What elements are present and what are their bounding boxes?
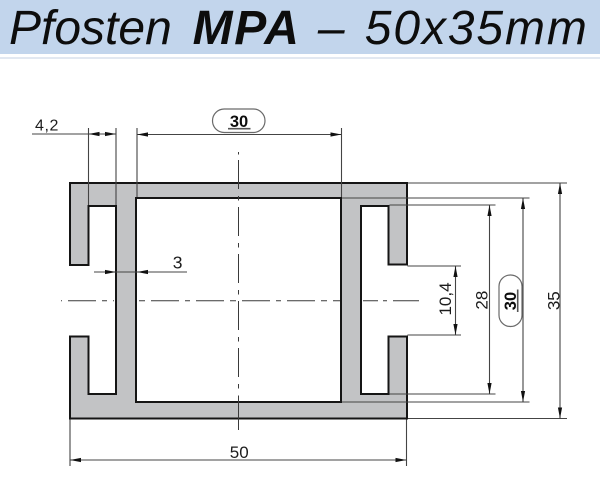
svg-text:35: 35 <box>545 291 564 310</box>
svg-text:10,4: 10,4 <box>436 282 455 315</box>
svg-text:50: 50 <box>230 443 249 462</box>
svg-text:3: 3 <box>173 252 183 272</box>
svg-text:4,2: 4,2 <box>35 118 59 135</box>
svg-text:28: 28 <box>472 291 491 310</box>
